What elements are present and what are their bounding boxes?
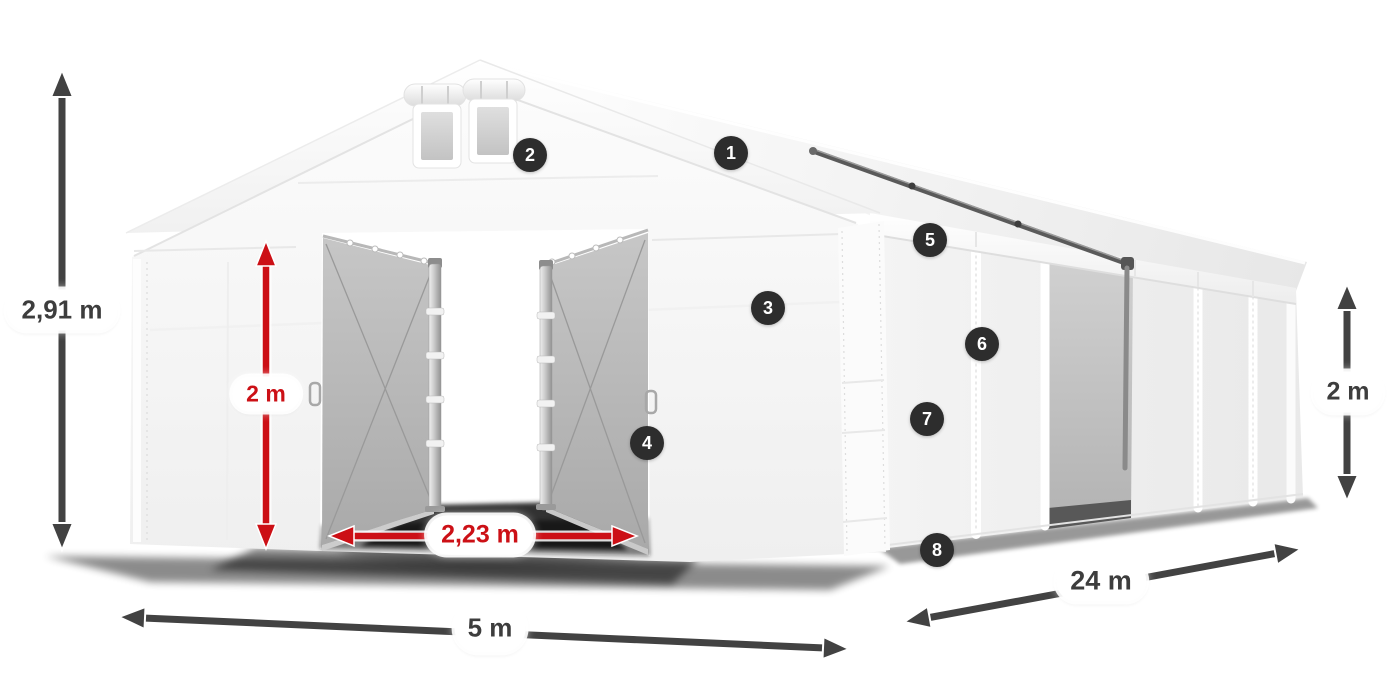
right-window-rolled-cover xyxy=(463,79,525,101)
side-opening-pole xyxy=(1125,268,1127,468)
tent-illustration xyxy=(0,0,1400,700)
part-marker-4: 4 xyxy=(630,426,664,460)
part-marker-1: 1 xyxy=(714,136,748,170)
side-entrance-opening xyxy=(1046,249,1133,529)
entrance-right-door-panel xyxy=(546,233,648,555)
entrance-left-door-panel xyxy=(322,238,434,551)
front-right-corner-seam xyxy=(838,221,890,556)
part-marker-3: 3 xyxy=(751,291,785,325)
dimension-label-side-height: 2 m xyxy=(1313,372,1382,413)
part-marker-6: 6 xyxy=(965,327,999,361)
dimension-label-entrance-width: 2,23 m xyxy=(427,516,533,555)
dimension-label-side-length: 24 m xyxy=(1056,561,1146,602)
part-marker-8: 8 xyxy=(920,533,954,567)
left-window-rolled-cover xyxy=(404,84,466,106)
dimension-label-front-width: 5 m xyxy=(455,604,526,653)
dimension-label-entrance-height: 2 m xyxy=(232,377,300,412)
part-marker-5: 5 xyxy=(913,223,947,257)
tent-dimension-diagram: 2,91 m 2 m 2,23 m 5 m 24 m 2 m 1 2 3 4 5… xyxy=(0,0,1400,700)
dimension-label-total-height: 2,91 m xyxy=(7,290,118,331)
front-entrance xyxy=(310,229,656,556)
part-marker-7: 7 xyxy=(910,402,944,436)
part-marker-2: 2 xyxy=(513,138,547,172)
